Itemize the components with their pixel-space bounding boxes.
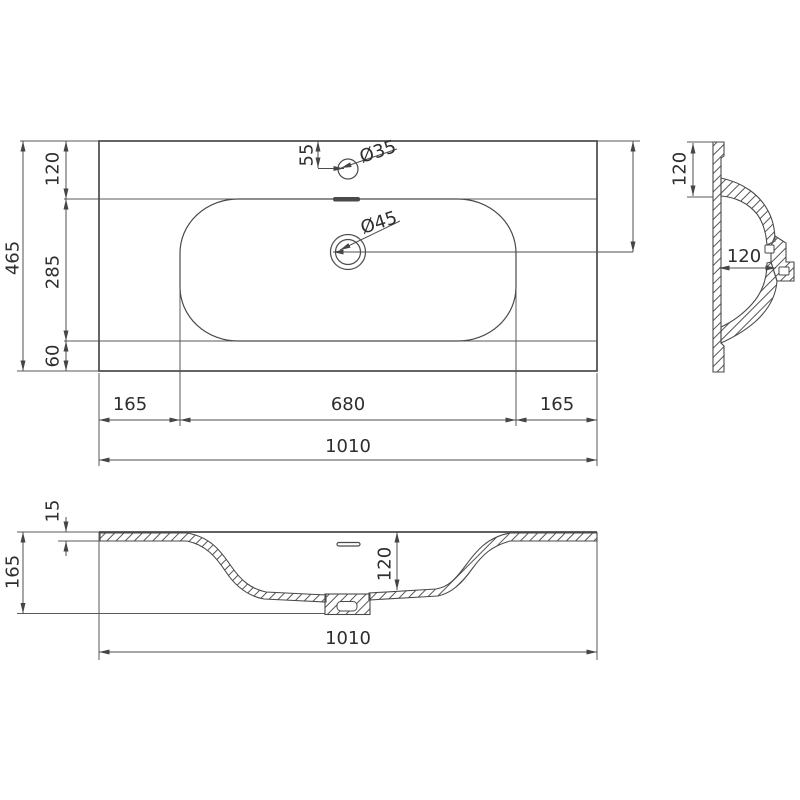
front-drain-slot: [337, 602, 357, 612]
washbasin-drawing: 465 120 285 60 55 Ø35 Ø45: [0, 0, 800, 800]
front-wall-right: [369, 533, 597, 600]
dim-label-60: 60: [43, 345, 64, 368]
dim-label-side-120v: 120: [670, 152, 691, 186]
front-section-view: 15 165 120 1010: [3, 500, 598, 660]
countertop-outline: [99, 141, 597, 371]
technical-drawing-sheet: 465 120 285 60 55 Ø35 Ø45: [0, 0, 800, 800]
dim-front-overall-width: 1010: [99, 628, 597, 652]
dim-overall-height: 165: [3, 532, 24, 614]
dim-flange-thickness: 15: [43, 500, 67, 556]
dim-label-165-left: 165: [113, 394, 147, 415]
dim-label-285: 285: [43, 255, 64, 289]
dim-overall-width: 1010: [99, 436, 597, 460]
plan-view: 465 120 285 60 55 Ø35 Ø45: [3, 136, 641, 466]
dim-label-120-back: 120: [43, 152, 64, 186]
dim-label-15: 15: [43, 500, 64, 523]
side-drain-recess: [779, 267, 789, 275]
side-basin-wall-lower: [721, 262, 777, 343]
dim-depth-chain: 120 285 60: [43, 141, 67, 371]
dim-label-165-height: 165: [3, 555, 24, 589]
dim-side-top-to-basin: 120: [670, 142, 714, 197]
front-wall-left: [100, 533, 326, 602]
dim-drain-diameter: Ø45: [333, 207, 633, 252]
front-overflow-slot: [337, 543, 360, 547]
dim-label-680: 680: [331, 394, 365, 415]
dim-label-465: 465: [3, 241, 24, 275]
dim-label-side-120h: 120: [727, 246, 761, 267]
side-section-view: 120 120: [670, 142, 795, 372]
dim-label-d45: Ø45: [358, 207, 400, 238]
overflow-slot: [333, 197, 360, 202]
dim-basin-depth: 120: [375, 532, 398, 590]
side-basin-wall-upper: [721, 178, 775, 245]
dim-label-165-right: 165: [540, 394, 574, 415]
dim-label-1010: 1010: [325, 436, 371, 457]
dim-faucet-offset: 55: [297, 141, 345, 169]
dim-label-55: 55: [297, 144, 318, 167]
dim-label-120-depth: 120: [375, 547, 396, 581]
dim-label-1010-front: 1010: [325, 628, 371, 649]
dim-width-chain: 165 680 165: [99, 394, 597, 420]
side-drain-opening: [765, 245, 774, 253]
plan-extension-lines: [17, 141, 640, 466]
dim-overall-depth: 465: [3, 141, 24, 371]
